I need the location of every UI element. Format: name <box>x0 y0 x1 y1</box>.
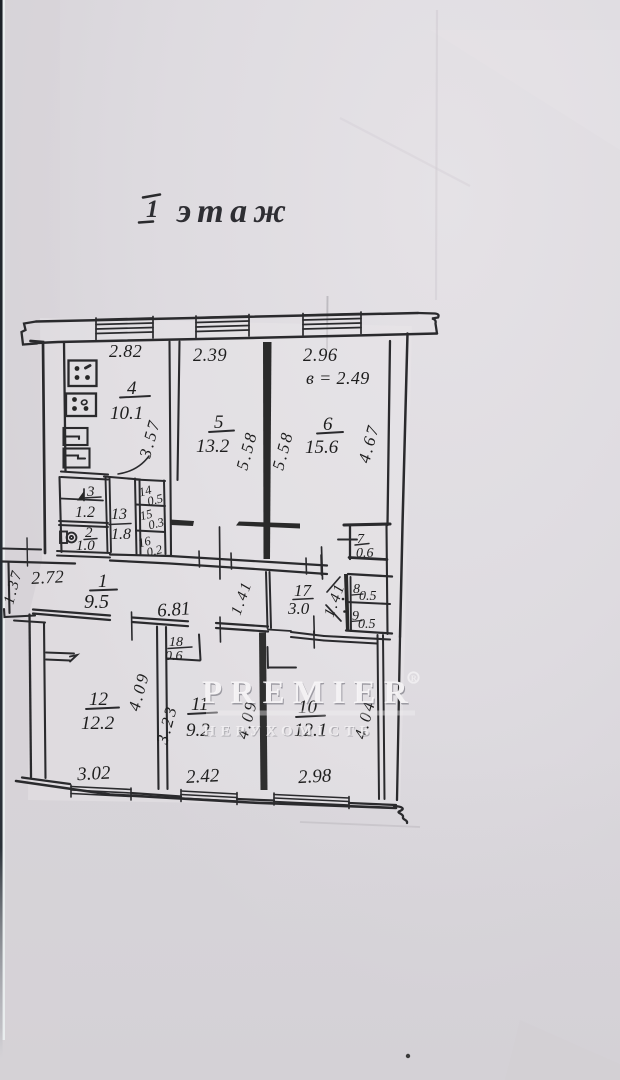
svg-text:9.5: 9.5 <box>84 591 109 613</box>
svg-text:10.1: 10.1 <box>110 403 143 424</box>
svg-text:1: 1 <box>146 196 159 223</box>
svg-text:2.82: 2.82 <box>109 341 142 361</box>
svg-text:2.39: 2.39 <box>193 346 227 366</box>
svg-text:0.5: 0.5 <box>359 589 377 604</box>
svg-text:НЕРУХОМІСТЬ: НЕРУХОМІСТЬ <box>204 724 375 740</box>
svg-text:6.81: 6.81 <box>156 598 191 621</box>
svg-text:этаж: этаж <box>176 193 292 230</box>
svg-text:R: R <box>411 674 417 683</box>
svg-text:2.98: 2.98 <box>298 765 333 788</box>
svg-text:3.0: 3.0 <box>287 599 310 618</box>
svg-text:3.02: 3.02 <box>76 762 112 785</box>
svg-text:1.8: 1.8 <box>111 526 131 543</box>
svg-text:13: 13 <box>111 506 127 523</box>
svg-text:PREMIER: PREMIER <box>202 675 416 711</box>
svg-text:2.96: 2.96 <box>303 346 338 366</box>
svg-text:0.6: 0.6 <box>165 649 183 664</box>
svg-text:0.5: 0.5 <box>358 617 376 632</box>
svg-text:1.2: 1.2 <box>75 504 95 521</box>
svg-text:5: 5 <box>214 412 224 433</box>
svg-text:1: 1 <box>98 571 108 592</box>
svg-text:2.72: 2.72 <box>31 566 65 588</box>
svg-text:0.6: 0.6 <box>356 546 374 561</box>
svg-text:13.2: 13.2 <box>196 436 230 457</box>
svg-text:в = 2.49: в = 2.49 <box>306 368 370 388</box>
svg-text:12.2: 12.2 <box>81 713 115 734</box>
svg-text:12: 12 <box>89 689 109 710</box>
svg-text:2.42: 2.42 <box>186 765 221 788</box>
svg-text:17: 17 <box>294 581 313 600</box>
svg-text:15.6: 15.6 <box>305 437 339 458</box>
